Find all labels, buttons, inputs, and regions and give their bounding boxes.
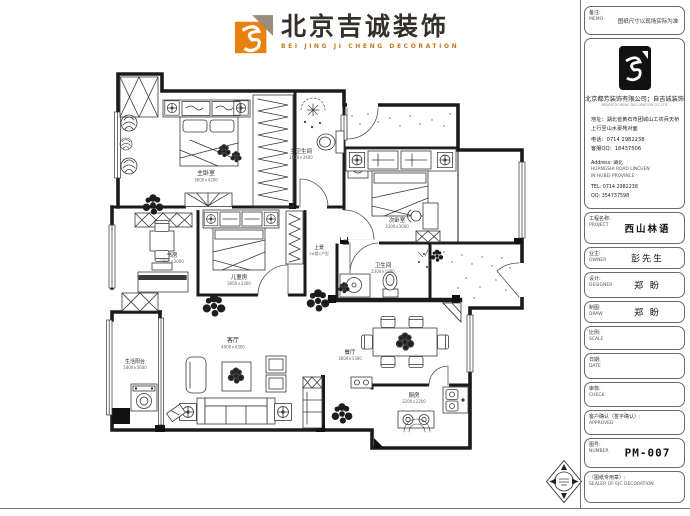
drawing-number: PM-007 xyxy=(615,447,680,460)
bedroom3-wardrobe-icon xyxy=(286,211,303,264)
svg-text:3000×3300: 3000×3300 xyxy=(227,281,251,286)
company-name: 北京都芳装饰有限公司；自吉诚装饰 xyxy=(585,94,684,103)
company-qq-en: QQ: 354737598 xyxy=(591,194,680,199)
room-label-bedroom2: 次卧室 xyxy=(389,216,406,224)
side-tables-icon xyxy=(266,356,286,392)
field-approved: 客户确认（签字确认）:APPROVED xyxy=(584,410,685,435)
field-owner: 业主:OWNER 彭先生 xyxy=(584,247,685,269)
study-cabinet-icon xyxy=(122,293,158,311)
svg-text:3#楼C户型: 3#楼C户型 xyxy=(309,251,329,256)
title-block: 备注:MEMO 图纸尺寸以现场实际为准 北京都芳装饰有限公司；自吉诚装饰 BEI… xyxy=(582,0,688,516)
field-number: 图号:NUMBER PM-007 xyxy=(584,438,685,468)
drawing-sheet: 北京吉诚装饰 BEI JING JI CHENG DECORATION xyxy=(0,0,690,516)
field-seal: （图纸专用章）:SEALER OF EJC DECORATION xyxy=(584,471,685,503)
company-stamp-icon xyxy=(545,459,583,504)
bedroom2-bed-icon xyxy=(346,149,456,216)
room-label-living: 客厅 xyxy=(227,336,239,344)
floor-plan: 主卧室 3600×4200 主卫生间 1900×3400 次卧室 3300×30… xyxy=(95,50,585,480)
tv-cabinet-icon xyxy=(303,377,322,428)
project-name: 西山林语 xyxy=(615,221,680,235)
room-label-bedroom3: 儿童房 xyxy=(231,273,248,281)
svg-text:1900×3400: 1900×3400 xyxy=(289,155,313,160)
field-scale: 比例:SCALE xyxy=(584,326,685,350)
bath2-toilet-icon xyxy=(383,272,398,297)
plants-icon xyxy=(120,115,137,174)
memo-text: 图纸尺寸以现场实际为准 xyxy=(615,17,681,25)
field-date: 日期:DATE xyxy=(584,353,685,379)
svg-text:3600×3300: 3600×3300 xyxy=(338,356,362,361)
chaise-icon xyxy=(186,357,206,393)
svg-text:3200×2200: 3200×2200 xyxy=(402,399,426,404)
room-label-balcony: 生活阳台 xyxy=(125,358,145,365)
svg-text:3300×3000: 3300×3000 xyxy=(385,224,409,229)
room-label-master-bath: 主卫生间 xyxy=(290,147,312,155)
drawer-name: 郑 盼 xyxy=(615,306,680,319)
company-addr-en-label: Address: 湖北 xyxy=(591,159,680,166)
company-tel-en: TEL: 0714 2982238 xyxy=(591,185,680,190)
bedroom3-bed-icon xyxy=(203,210,279,270)
memo-label: 备注: xyxy=(589,10,601,16)
dining-table-icon xyxy=(362,317,449,368)
company-addr-en1: HUANGSHI ROAD LINCHEN xyxy=(591,167,680,172)
field-draw: 制图:DRAW 郑 盼 xyxy=(584,301,685,323)
kitchen-sink-icon xyxy=(443,387,468,413)
company-addr2: 上行至山水豪苑对面 xyxy=(591,125,680,132)
brand-subtitle: BEI JING JI CHENG DECORATION xyxy=(281,43,459,50)
brand-name: 北京吉诚装饰 xyxy=(281,13,459,41)
svg-text:2800×3000: 2800×3000 xyxy=(160,259,184,264)
room-label-kitchen: 厨房 xyxy=(408,391,420,399)
bath2-vanity-icon xyxy=(339,274,370,297)
closet-hangers-icon xyxy=(253,95,293,207)
corner-cabinet-icon xyxy=(443,303,461,322)
designer-name: 郑 盼 xyxy=(615,279,680,292)
title-block-divider xyxy=(580,0,581,509)
room-label-dining: 餐厅 xyxy=(344,348,356,356)
svg-text:1800×5600: 1800×5600 xyxy=(123,365,147,370)
field-project: 工程名称:PROJECT 西山林语 xyxy=(584,212,685,244)
master-wardrobe-icon xyxy=(120,77,158,117)
field-designer: 设计:DESIGNER 郑 盼 xyxy=(584,272,685,298)
room-label-study: 书房 xyxy=(166,251,178,259)
washing-machine-icon xyxy=(131,384,157,411)
coffee-table-icon xyxy=(222,362,251,391)
svg-text:3600×4200: 3600×4200 xyxy=(194,178,218,183)
owner-name: 彭先生 xyxy=(615,252,680,265)
svg-text:4900×4300: 4900×4300 xyxy=(221,345,245,350)
memo-box: 备注:MEMO 图纸尺寸以现场实际为准 xyxy=(584,6,685,35)
shower-icon xyxy=(301,98,325,128)
toilet-icon xyxy=(317,131,344,153)
room-label-bath2: 卫生间 xyxy=(375,261,392,269)
master-bed-icon xyxy=(163,100,250,166)
company-qq: 客服QQ：18437506 xyxy=(591,145,680,152)
memo-label-en: MEMO xyxy=(589,17,603,23)
stove-icon xyxy=(398,411,434,432)
bedroom2-cabinet-icon xyxy=(416,231,440,242)
company-addr1: 地址：湖北省黄石市团城山工农兵天桥 xyxy=(591,116,680,123)
company-name-en: BEIJING JICHENG DECORATION CO.,LTD xyxy=(585,103,684,107)
sofa-icon xyxy=(197,398,275,424)
company-logo-icon xyxy=(618,45,652,91)
company-addr-en2: IN HUBEI PROVINCE xyxy=(591,174,680,179)
svg-text:2300×1800: 2300×1800 xyxy=(371,269,395,274)
pass-counter-icon xyxy=(351,377,372,388)
room-label-master: 主卧室 xyxy=(197,169,215,177)
company-box: 北京都芳装饰有限公司；自吉诚装饰 BEIJING JICHENG DECORAT… xyxy=(584,38,685,209)
piano-icon xyxy=(138,263,188,292)
company-phone: 电话：0714 2982238 xyxy=(591,136,680,143)
field-check: 审核:CHECK xyxy=(584,382,685,407)
brand-text: 北京吉诚装饰 BEI JING JI CHENG DECORATION xyxy=(281,13,459,50)
note-label: 上景 xyxy=(314,244,324,251)
